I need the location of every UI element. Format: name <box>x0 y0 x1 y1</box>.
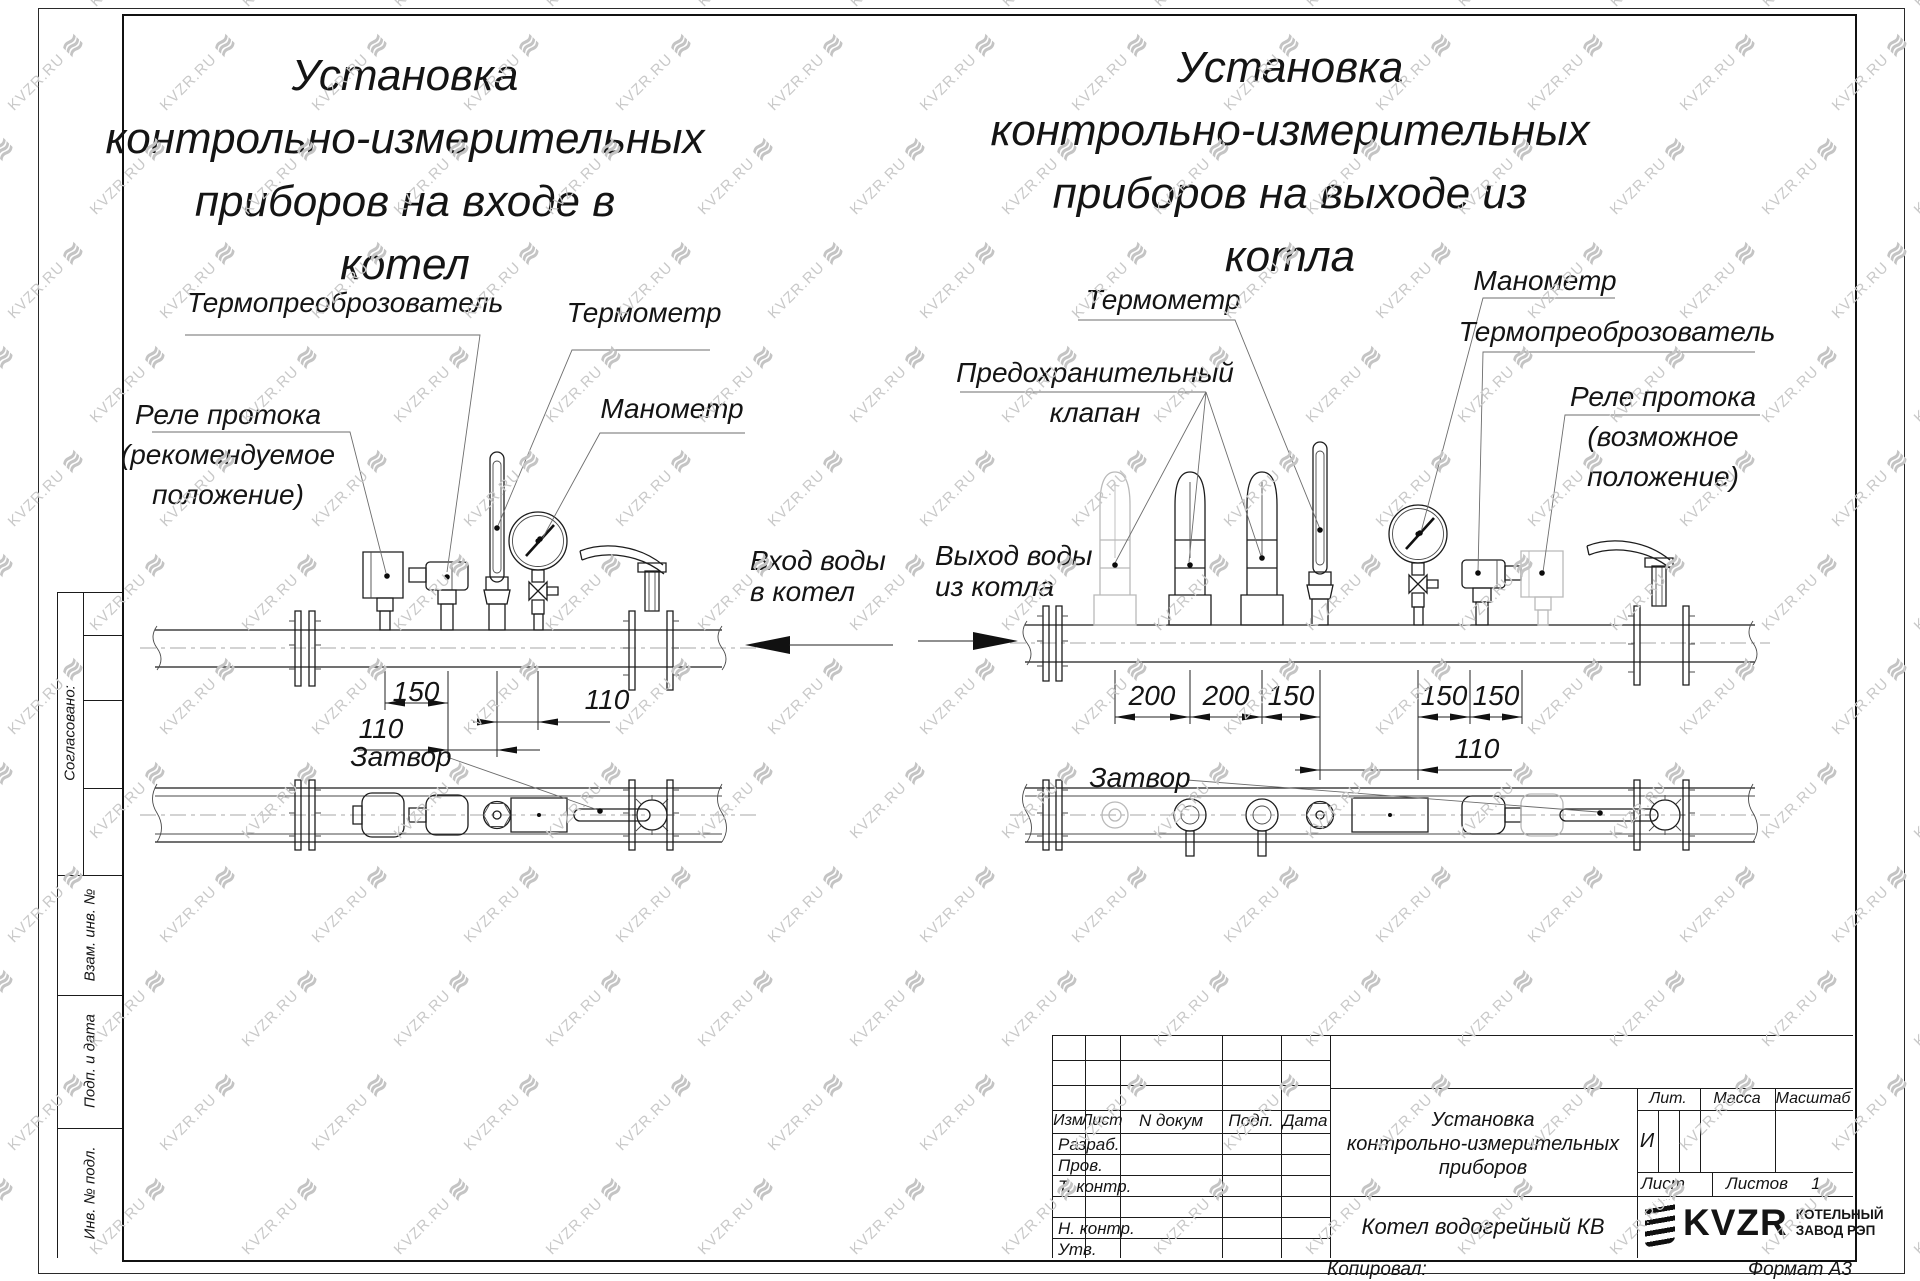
right-butterfly-valve-icon <box>1587 541 1695 685</box>
tb-product-name: Котел водогрейный КВ <box>1361 1214 1604 1240</box>
tb-col-data: Дата <box>1283 1111 1328 1131</box>
tb-lit-header: Лит. <box>1649 1090 1686 1108</box>
tb-col-izm: Изм <box>1053 1112 1083 1130</box>
tb-col-podp: Подп. <box>1228 1111 1273 1131</box>
label-outlet-flow: Выход воды из котла <box>935 540 1092 602</box>
tb-sheets-label: Листов <box>1726 1174 1788 1194</box>
footer-copied-label: Копировал: <box>1327 1259 1427 1281</box>
dimension-left-110b: 110 <box>585 684 630 716</box>
label-thermometer-right: Термометр <box>1086 280 1241 320</box>
left-diagram-title: Установка контрольно-измерительных прибо… <box>105 44 704 296</box>
label-thermo-transducer-right: Термопреоброзователь <box>1459 312 1776 352</box>
dimension-right-150a: 150 <box>1268 680 1315 712</box>
right-pipe-front-view <box>1010 606 1770 681</box>
left-pressure-gauge-icon <box>509 512 567 630</box>
tb-scale-header: Масштаб <box>1776 1090 1851 1108</box>
tb-row-nkontr: Н. контр. <box>1058 1219 1135 1239</box>
tb-doc-title: Установка контрольно-измерительных прибо… <box>1347 1108 1619 1180</box>
right-safety-valve-1-icon <box>1094 472 1136 625</box>
dimension-right-200b: 200 <box>1203 680 1250 712</box>
left-thermo-transducer-icon <box>409 562 468 630</box>
tb-row-utv: Утв. <box>1058 1240 1097 1260</box>
outlet-flow-arrow-icon <box>918 632 1018 650</box>
left-flow-relay-icon <box>363 552 403 630</box>
label-flow-relay-left: Реле протока (рекомендуемое положение) <box>121 395 335 515</box>
label-safety-valve-right: Предохранительный клапан <box>956 353 1234 433</box>
tb-row-tkontr: Т. контр. <box>1058 1177 1131 1197</box>
kvzr-logo-sub1: КОТЕЛЬНЫЙ <box>1796 1207 1884 1223</box>
label-thermo-transducer-left: Термопреоброзователь <box>187 283 504 323</box>
dimension-right-110: 110 <box>1455 733 1500 765</box>
kvzr-logo-sub2: ЗАВОД РЭП <box>1796 1223 1884 1239</box>
right-flow-relay-icon <box>1521 551 1563 625</box>
kvzr-logo-coil-icon <box>1645 1198 1675 1247</box>
tb-lit-value: И <box>1640 1129 1654 1153</box>
sidebar-label-vzam-inv: Взам. инв. № <box>82 889 99 982</box>
tb-col-ndokum: N докум <box>1139 1111 1203 1131</box>
dimension-left-110a: 110 <box>359 713 404 745</box>
right-pressure-gauge-icon <box>1389 505 1447 625</box>
right-thermometer-icon <box>1307 442 1333 625</box>
footer-format-label: Формат А3 <box>1748 1259 1852 1281</box>
tb-col-list: Лист <box>1081 1112 1122 1130</box>
tb-mass-header: Масса <box>1713 1090 1760 1108</box>
inlet-flow-arrow-icon <box>745 636 893 654</box>
blueprint-sheet: { "watermark": { "text": "KVZR.RU", "gly… <box>0 0 1920 1280</box>
right-safety-valve-3-icon <box>1241 472 1283 625</box>
left-pipe-top-view <box>140 780 760 850</box>
label-valve-right: Затвор <box>1089 758 1190 798</box>
sidebar-label-inv-podl: Инв. № подл. <box>82 1146 99 1239</box>
tb-row-razrab: Разраб. <box>1058 1135 1120 1155</box>
dimension-right-150c: 150 <box>1473 680 1520 712</box>
left-thermometer-icon <box>484 452 510 630</box>
tb-row-prov: Пров. <box>1058 1156 1103 1176</box>
label-manometer-right: Манометр <box>1473 261 1616 301</box>
label-inlet-flow: Вход воды в котел <box>750 545 886 607</box>
sidebar-label-podp-data: Подп. и дата <box>82 1014 99 1108</box>
label-manometer-left: Манометр <box>600 389 743 429</box>
dimension-right-150b: 150 <box>1421 680 1468 712</box>
tb-sheet-label: Лист <box>1641 1174 1685 1194</box>
dimension-right-200a: 200 <box>1129 680 1176 712</box>
right-thermo-transducer-icon <box>1462 560 1521 625</box>
label-flow-relay-right: Реле протока (возможное положение) <box>1570 377 1756 497</box>
right-diagram-title: Установка контрольно-измерительных прибо… <box>990 36 1589 288</box>
kvzr-logo: KVZR КОТЕЛЬНЫЙ ЗАВОД РЭП <box>1645 1201 1884 1245</box>
sidebar-label-agreed: Согласовано: <box>62 685 79 781</box>
kvzr-logo-text: KVZR <box>1683 1202 1788 1244</box>
left-butterfly-valve-icon <box>580 546 679 690</box>
dimension-left-150: 150 <box>393 676 440 708</box>
label-thermometer-left: Термометр <box>567 293 722 333</box>
tb-sheets-value: 1 <box>1811 1174 1820 1194</box>
